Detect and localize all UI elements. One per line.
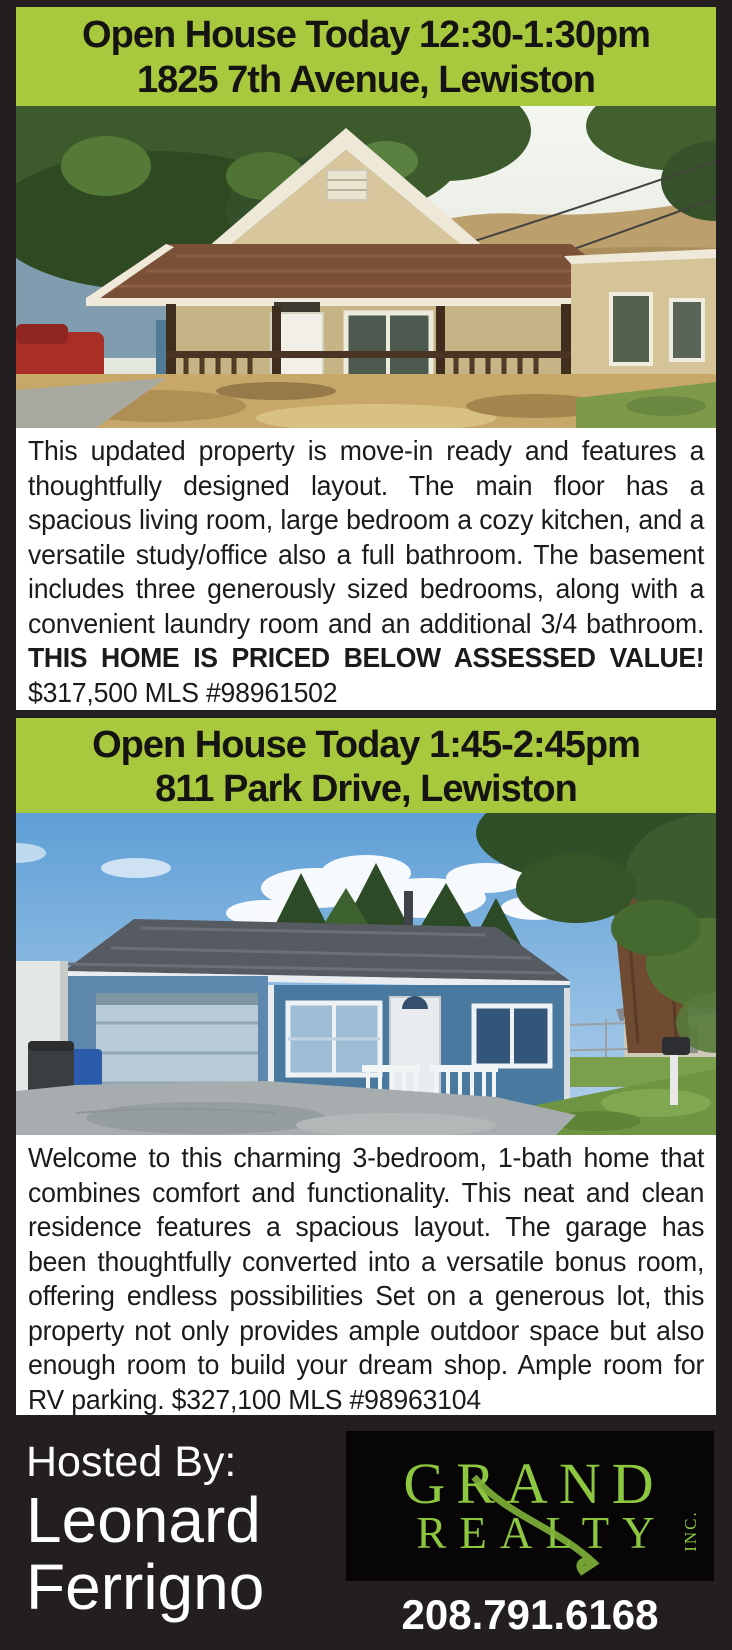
listing1-photo-illustration bbox=[16, 106, 716, 428]
footer: Hosted By: Leonard Ferrigno GRAND REALTY… bbox=[16, 1415, 716, 1650]
agent-last-name: Ferrigno bbox=[26, 1554, 344, 1621]
agent-first-name: Leonard bbox=[26, 1487, 344, 1554]
phone-number: 208.791.6168 bbox=[402, 1591, 659, 1639]
listing1-description-text: This updated property is move-in ready a… bbox=[28, 435, 704, 639]
listing2-photo-illustration bbox=[16, 813, 716, 1135]
listing2-description: Welcome to this charming 3-bedroom, 1-ba… bbox=[16, 1135, 716, 1415]
listing1-banner: Open House Today 12:30-1:30pm 1825 7th A… bbox=[16, 7, 716, 106]
section-divider bbox=[16, 710, 716, 718]
listing2-banner: Open House Today 1:45-2:45pm 811 Park Dr… bbox=[16, 718, 716, 813]
listing2-description-text: Welcome to this charming 3-bedroom, 1-ba… bbox=[28, 1142, 704, 1415]
listing1-description-emphasis: THIS HOME IS PRICED BELOW ASSESSED VALUE… bbox=[28, 642, 704, 673]
listing2-photo bbox=[16, 813, 716, 1135]
listing2-banner-time: Open House Today 1:45-2:45pm bbox=[16, 723, 716, 767]
hosted-by-label: Hosted By: bbox=[26, 1437, 344, 1487]
listing1-price-mls: $317,500 MLS #98961502 bbox=[28, 677, 337, 708]
listing2-banner-address: 811 Park Drive, Lewiston bbox=[16, 767, 716, 811]
flyer-page: Open House Today 12:30-1:30pm 1825 7th A… bbox=[0, 0, 732, 1650]
dry-lawn bbox=[16, 374, 716, 428]
hosted-by-block: Hosted By: Leonard Ferrigno bbox=[26, 1431, 344, 1621]
listing1-banner-time: Open House Today 12:30-1:30pm bbox=[16, 13, 716, 58]
listing1-photo bbox=[16, 106, 716, 428]
listing1-description: This updated property is move-in ready a… bbox=[16, 428, 716, 710]
logo-word-inc: INC. bbox=[681, 1510, 701, 1552]
grand-realty-logo: GRAND REALTY INC. bbox=[346, 1431, 714, 1581]
logo-swoosh-decoration bbox=[346, 1431, 714, 1581]
listing1-banner-address: 1825 7th Avenue, Lewiston bbox=[16, 58, 716, 103]
brokerage-block: GRAND REALTY INC. 208.791.6168 bbox=[344, 1431, 716, 1639]
